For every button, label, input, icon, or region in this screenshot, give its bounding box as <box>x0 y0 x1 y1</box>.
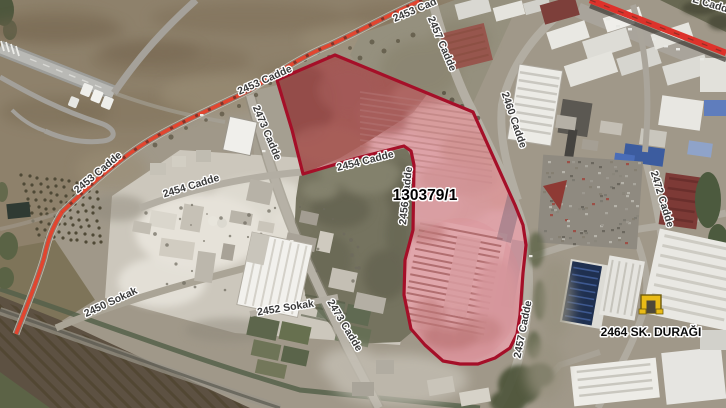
svg-text:2464 SK. DURAĞI: 2464 SK. DURAĞI <box>601 324 702 339</box>
svg-text:130379/1: 130379/1 <box>393 187 458 204</box>
